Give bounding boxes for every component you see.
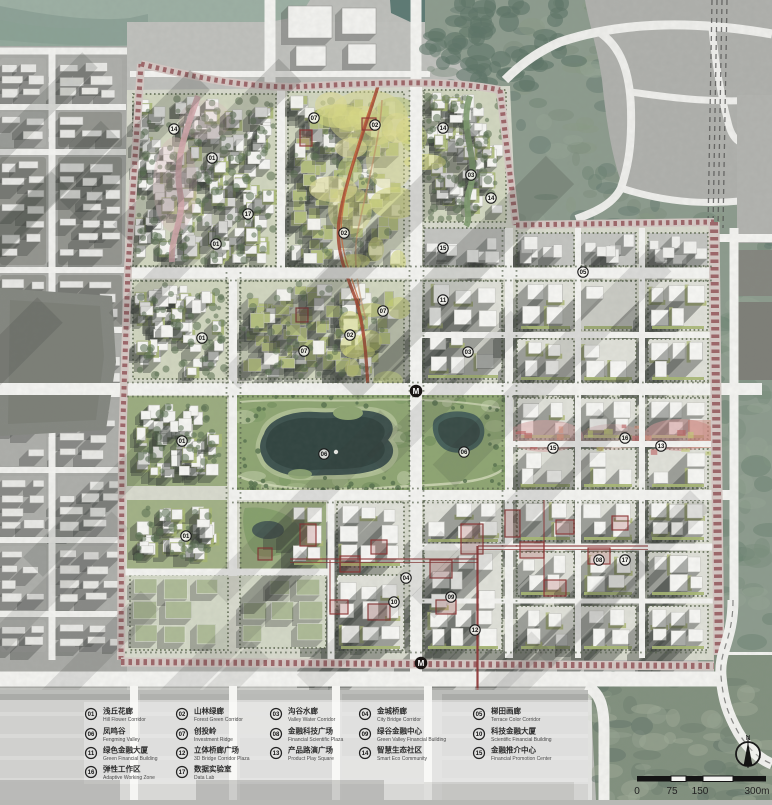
svg-text:07: 07 <box>380 309 387 315</box>
svg-text:14: 14 <box>440 126 447 132</box>
svg-text:金融科技广场: 金融科技广场 <box>287 726 333 736</box>
svg-text:01: 01 <box>213 242 220 248</box>
svg-text:Smart Eco Community: Smart Eco Community <box>377 756 428 762</box>
svg-text:Financial Scientific Plaza: Financial Scientific Plaza <box>288 737 344 743</box>
svg-text:M: M <box>418 659 425 668</box>
svg-text:Adaptive Working Zone: Adaptive Working Zone <box>103 775 155 781</box>
svg-text:01: 01 <box>199 336 206 342</box>
svg-text:梯田画廊: 梯田画廊 <box>491 706 521 716</box>
svg-text:15: 15 <box>440 246 447 252</box>
svg-text:04: 04 <box>362 712 369 718</box>
svg-text:16: 16 <box>88 770 95 776</box>
svg-text:弹性工作区: 弹性工作区 <box>103 764 141 774</box>
svg-text:01: 01 <box>183 534 190 540</box>
svg-text:Data Lab: Data Lab <box>194 775 215 781</box>
svg-text:07: 07 <box>179 732 186 738</box>
svg-text:13: 13 <box>658 444 665 450</box>
svg-text:12: 12 <box>472 628 479 634</box>
svg-text:15: 15 <box>550 446 557 452</box>
svg-text:03: 03 <box>468 173 475 179</box>
svg-text:15: 15 <box>476 751 483 757</box>
svg-text:0: 0 <box>634 786 640 797</box>
svg-text:产品路演广场: 产品路演广场 <box>288 745 333 755</box>
svg-text:04: 04 <box>403 576 410 582</box>
svg-text:Valley Water Corridor: Valley Water Corridor <box>288 717 336 723</box>
svg-text:金融推介中心: 金融推介中心 <box>490 745 536 755</box>
svg-text:05: 05 <box>476 712 483 718</box>
svg-text:山林绿廊: 山林绿廊 <box>194 706 224 716</box>
svg-text:绿谷金融中心: 绿谷金融中心 <box>377 726 422 736</box>
svg-text:07: 07 <box>301 349 308 355</box>
svg-text:06: 06 <box>88 732 95 738</box>
svg-text:14: 14 <box>171 127 178 133</box>
svg-text:立体桥廊广场: 立体桥廊广场 <box>194 745 239 755</box>
svg-text:Terrace Color Corridor: Terrace Color Corridor <box>491 717 541 723</box>
svg-text:01: 01 <box>88 712 95 718</box>
svg-text:绿色金融大厦: 绿色金融大厦 <box>103 745 148 755</box>
svg-text:N: N <box>745 735 750 742</box>
svg-text:14: 14 <box>488 196 495 202</box>
svg-text:M: M <box>413 387 420 396</box>
svg-text:12: 12 <box>179 751 186 757</box>
svg-text:沟谷水廊: 沟谷水廊 <box>288 706 318 716</box>
svg-text:17: 17 <box>245 212 252 218</box>
svg-text:02: 02 <box>179 712 186 718</box>
svg-text:02: 02 <box>372 123 379 129</box>
svg-text:Forest Green Corridor: Forest Green Corridor <box>194 717 243 723</box>
svg-text:Green Valley Financial Buildin: Green Valley Financial Building <box>377 737 446 743</box>
svg-text:150: 150 <box>692 786 709 797</box>
svg-text:创投岭: 创投岭 <box>193 726 217 736</box>
svg-text:01: 01 <box>209 156 216 162</box>
svg-text:03: 03 <box>465 350 472 356</box>
svg-text:金城桥廊: 金城桥廊 <box>376 706 407 716</box>
svg-text:06: 06 <box>461 450 468 456</box>
svg-text:Scientific Financial Building: Scientific Financial Building <box>491 737 552 743</box>
svg-text:09: 09 <box>448 595 455 601</box>
svg-text:Investment Ridge: Investment Ridge <box>194 737 233 743</box>
svg-text:01: 01 <box>179 439 186 445</box>
svg-text:Financial Promotion Center: Financial Promotion Center <box>491 756 552 762</box>
svg-text:Fengming Valley: Fengming Valley <box>103 737 140 743</box>
svg-text:08: 08 <box>596 558 603 564</box>
svg-text:Hill Flower Corridor: Hill Flower Corridor <box>103 717 146 723</box>
svg-text:智慧生态社区: 智慧生态社区 <box>377 745 422 755</box>
svg-text:16: 16 <box>622 436 629 442</box>
svg-text:City Bridge Corridor: City Bridge Corridor <box>377 717 421 723</box>
svg-text:3D Bridge Corridor Plaza: 3D Bridge Corridor Plaza <box>194 756 250 762</box>
svg-text:17: 17 <box>622 558 629 564</box>
svg-text:06: 06 <box>321 452 328 458</box>
svg-text:17: 17 <box>179 770 186 776</box>
svg-text:数据实验室: 数据实验室 <box>194 764 232 774</box>
svg-text:300m: 300m <box>744 786 769 797</box>
svg-text:Product Play Square: Product Play Square <box>288 756 334 762</box>
svg-text:09: 09 <box>362 732 369 738</box>
svg-text:05: 05 <box>580 270 587 276</box>
svg-text:13: 13 <box>273 751 280 757</box>
svg-text:02: 02 <box>341 231 348 237</box>
svg-text:75: 75 <box>666 786 678 797</box>
svg-text:凤鸣谷: 凤鸣谷 <box>103 726 126 736</box>
svg-text:11: 11 <box>440 298 447 304</box>
svg-text:08: 08 <box>273 732 280 738</box>
svg-text:02: 02 <box>347 333 354 339</box>
svg-text:Green Financial Building: Green Financial Building <box>103 756 158 762</box>
svg-text:10: 10 <box>476 732 483 738</box>
svg-text:10: 10 <box>391 600 398 606</box>
svg-text:14: 14 <box>362 751 369 757</box>
svg-text:浅丘花廊: 浅丘花廊 <box>103 706 133 716</box>
svg-text:03: 03 <box>273 712 280 718</box>
svg-text:07: 07 <box>311 116 318 122</box>
svg-text:科技金融大厦: 科技金融大厦 <box>491 726 536 736</box>
svg-text:11: 11 <box>88 751 95 757</box>
